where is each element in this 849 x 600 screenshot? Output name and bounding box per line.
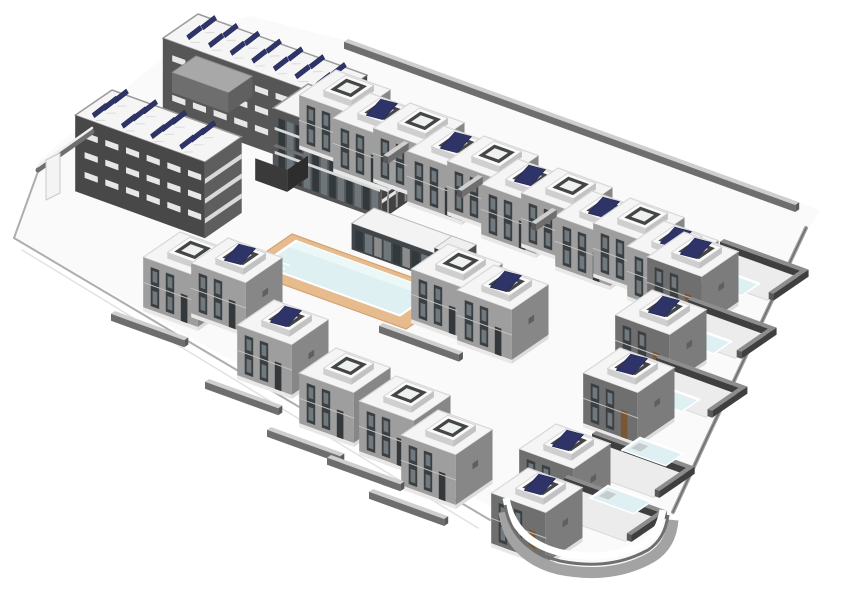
site-model-canvas bbox=[0, 0, 849, 600]
model-viewport bbox=[0, 0, 849, 600]
